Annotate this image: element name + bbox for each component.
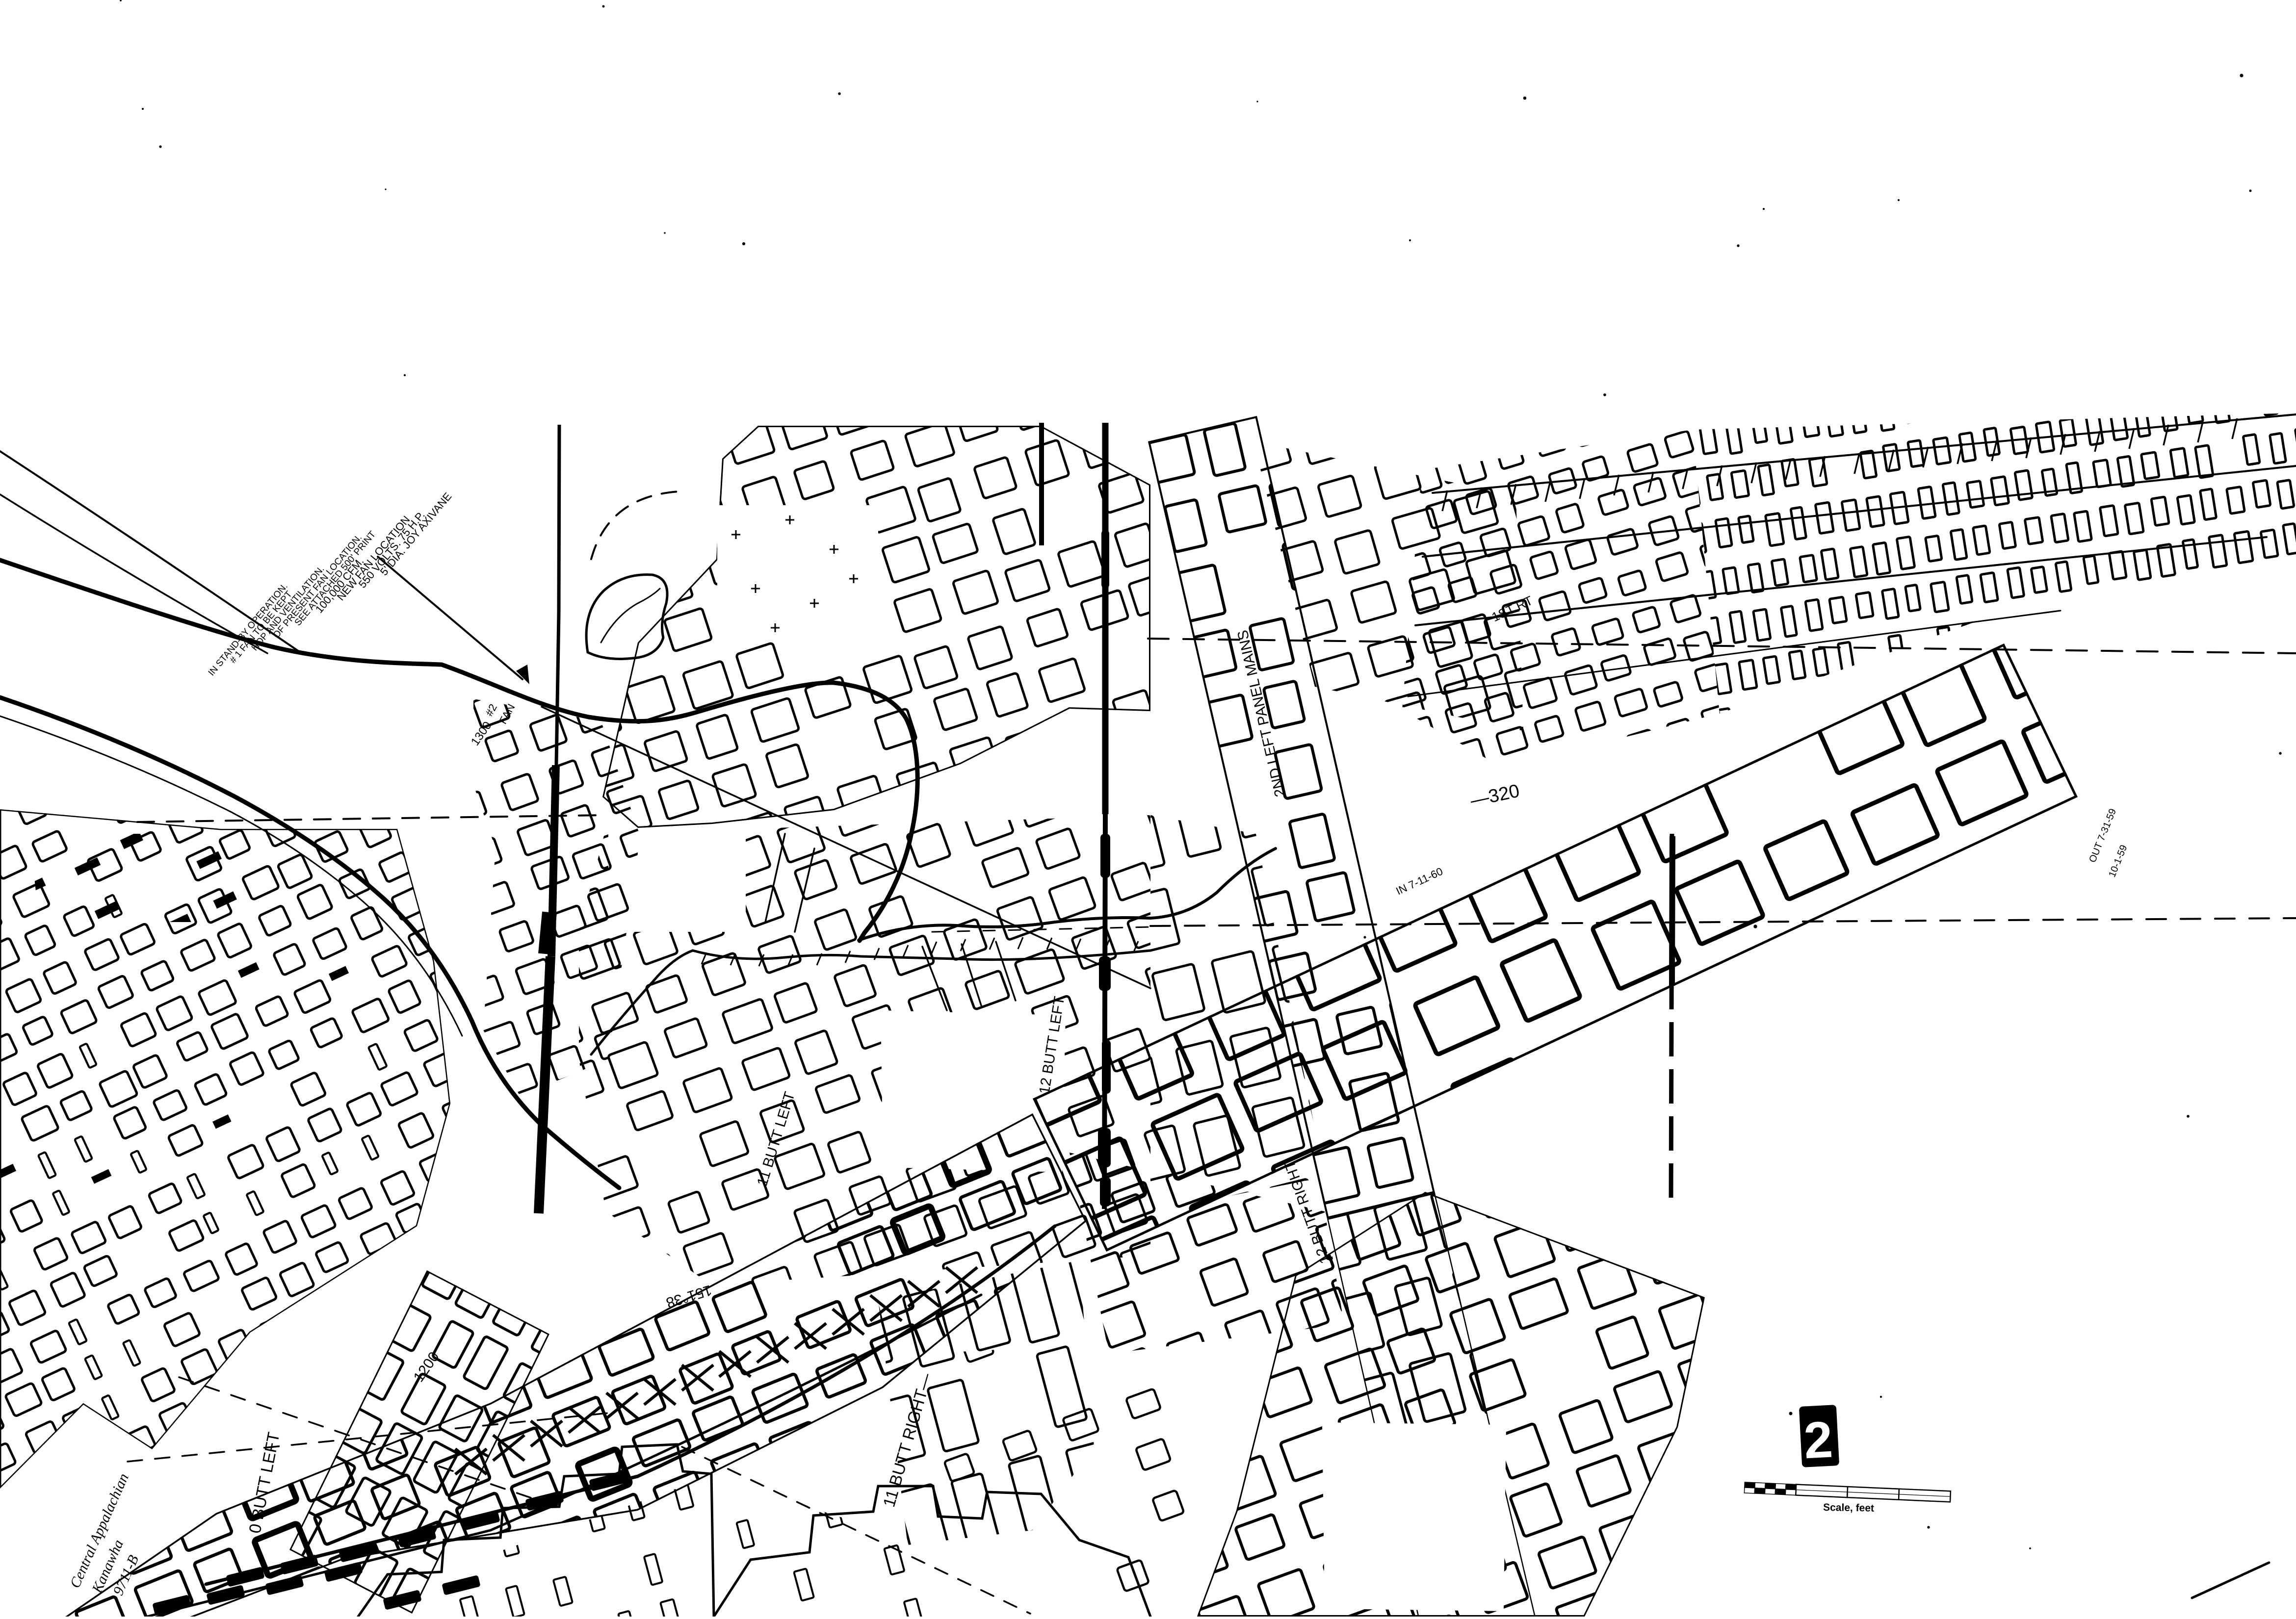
svg-text:Scale, feet: Scale, feet [1823,1502,1874,1514]
svg-text:2: 2 [1802,1411,1834,1470]
